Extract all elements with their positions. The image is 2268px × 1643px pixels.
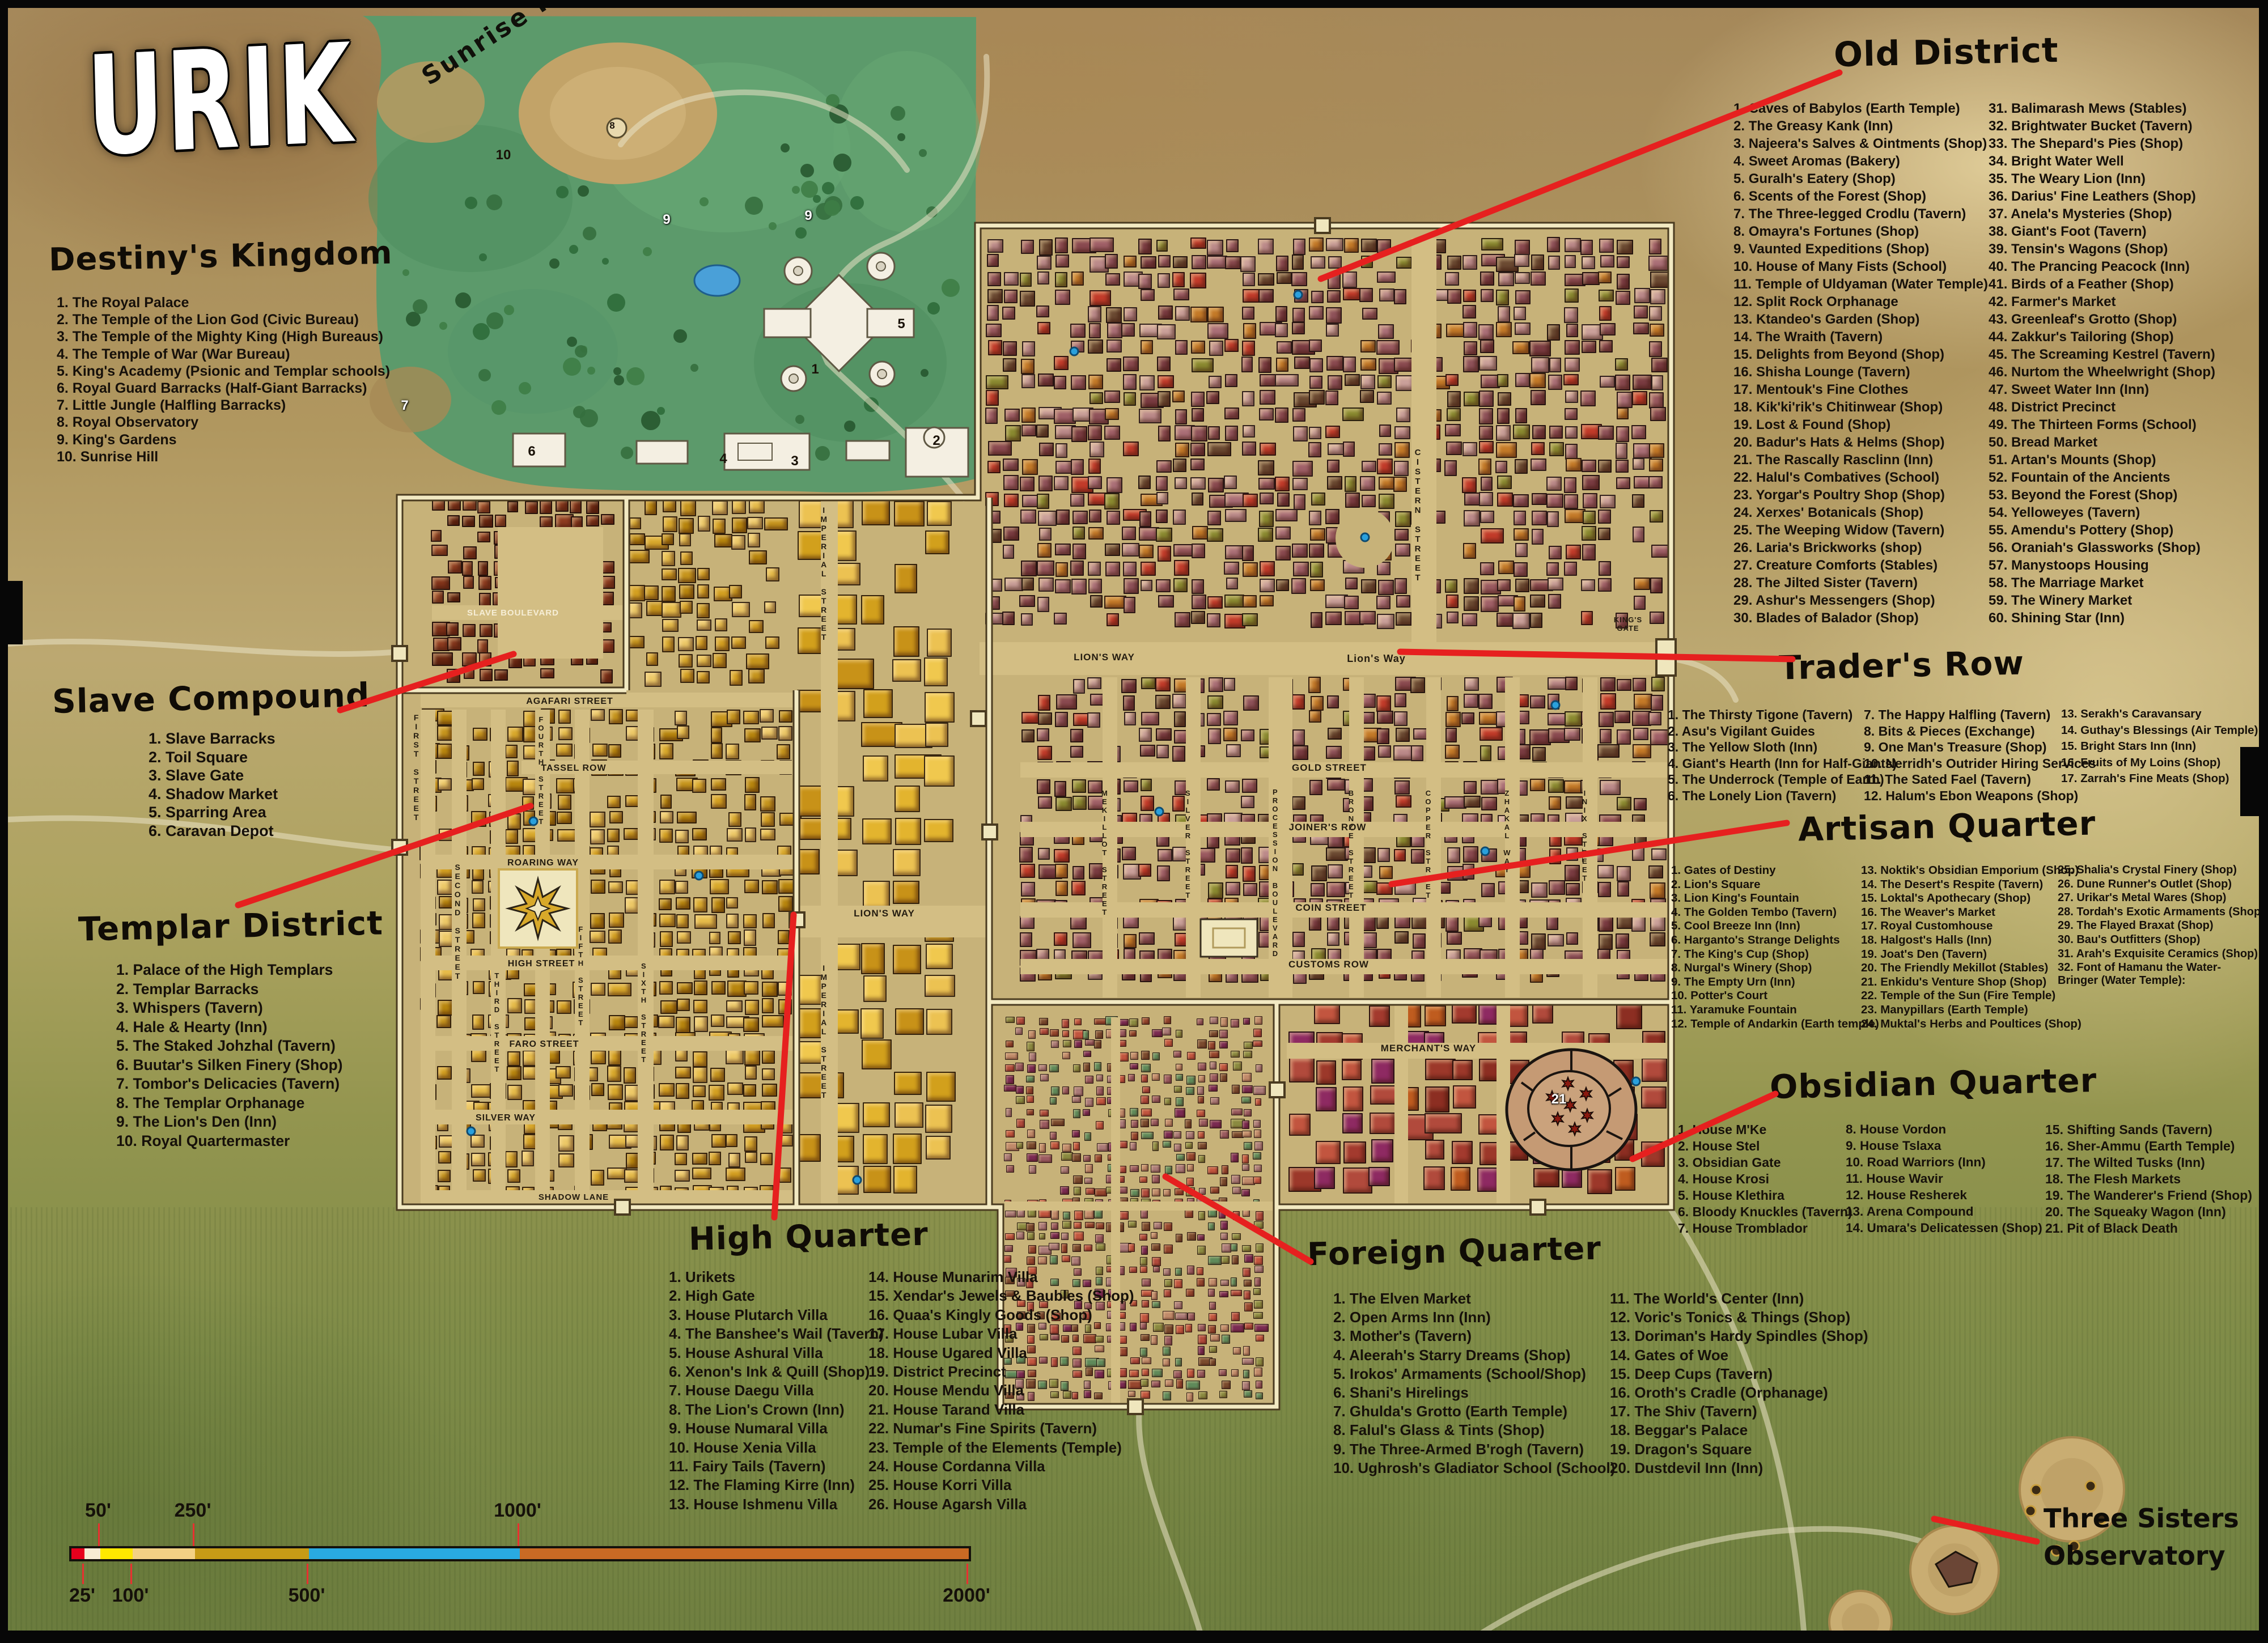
frame-tab-left bbox=[0, 581, 23, 644]
urik-map: URIK Sunrise Hill Three Sisters Observat… bbox=[0, 0, 2268, 1643]
frame-bottom bbox=[0, 1631, 2268, 1643]
frame-top bbox=[0, 0, 2268, 8]
frame-tab-right bbox=[2240, 747, 2268, 816]
frame-right bbox=[2259, 0, 2268, 1643]
frame-left bbox=[0, 0, 8, 1643]
callout-lines-layer bbox=[0, 0, 2268, 1643]
